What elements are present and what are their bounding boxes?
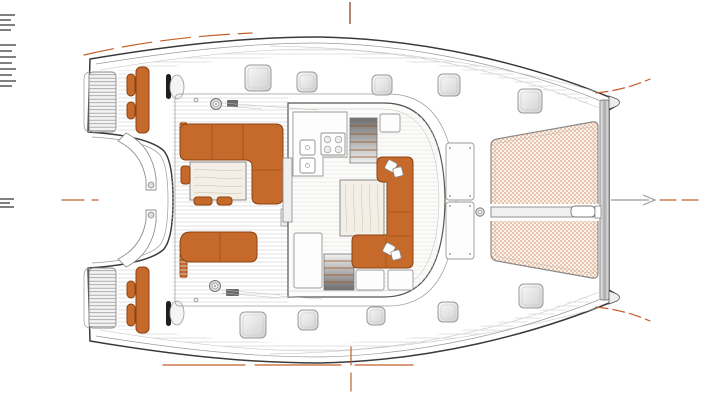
foredeck-locker-starboard (446, 202, 474, 259)
winch-center (215, 103, 217, 105)
cleat-starboard (194, 298, 198, 302)
helm-seat-cushion (127, 281, 135, 298)
saloon-cabinet-1 (356, 270, 384, 290)
cropped-edge-marks (0, 15, 16, 207)
helm-seat-cushions (127, 74, 135, 326)
davit-bolt-starboard (148, 212, 154, 218)
trampoline (491, 122, 598, 278)
helm-seat-cushion (127, 304, 135, 326)
bow-tip-port (609, 96, 620, 109)
galley-sink-2 (300, 158, 315, 173)
catamaran-deck-plan (0, 0, 720, 400)
helm-seat-cushion (127, 74, 135, 96)
cockpit-stool-2 (217, 197, 232, 205)
bow-tip-starboard (609, 291, 620, 304)
port-counter (294, 233, 322, 288)
galley-sink-1 (300, 140, 315, 155)
sliding-door (283, 158, 292, 222)
winch-center (214, 285, 216, 287)
pillow (393, 167, 404, 178)
cockpit-stool-left (181, 166, 190, 184)
notch-inner-line (92, 137, 168, 263)
galley-cabinet (380, 114, 400, 132)
helm-bench-starboard (136, 267, 149, 333)
windlass-gypsy (478, 210, 481, 213)
cleat-port (194, 98, 198, 102)
stairs-port-hull (324, 254, 354, 290)
swim-steps-port (89, 72, 116, 132)
cockpit-stool-1 (194, 197, 212, 205)
helm-console-port (170, 75, 184, 99)
crossbeam-center-bracket (595, 206, 601, 218)
rope-clutch-starboard (226, 289, 239, 296)
davit-bolt-port (148, 182, 154, 188)
cockpit-table (190, 162, 246, 200)
helm-console-starboard (170, 301, 184, 325)
bow-accent-port (596, 79, 650, 93)
bowsprit-fitting (571, 206, 595, 217)
saloon-cabinet-2 (388, 270, 413, 290)
swim-steps-starboard (89, 268, 116, 328)
helm-bench-port (136, 67, 149, 133)
pillow (391, 250, 402, 261)
foredeck-locker-port (446, 143, 474, 200)
stairs-starboard-hull (350, 118, 377, 163)
cockpit-aft-bench (180, 232, 257, 262)
saloon (283, 103, 445, 297)
forward-crossbeam (600, 100, 609, 300)
helm-seat-cushion (127, 102, 135, 119)
bow-accent-starboard (596, 307, 650, 321)
